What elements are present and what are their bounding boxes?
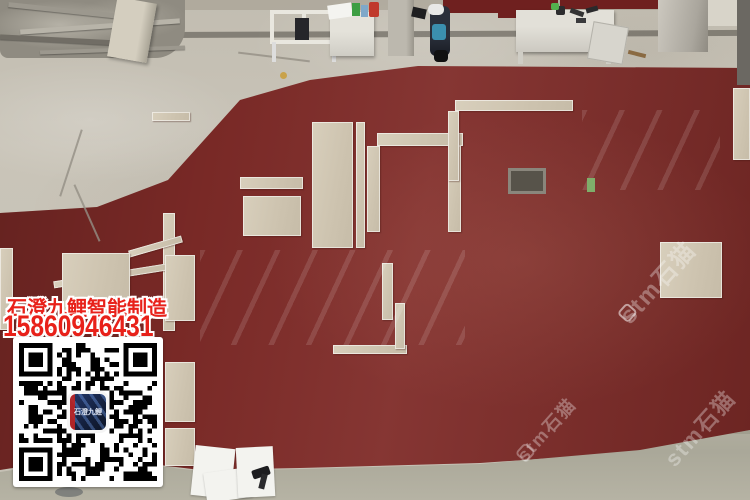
marble-strip [152,112,190,121]
factory-floor-photo: stm石猫 stm石猫 stm石猫 石澄九鲤智能制造 15860946431 石… [0,0,750,500]
tile-grid-center-left [190,248,350,466]
marble-strip [448,111,459,181]
tile-grid-column [405,240,469,423]
scooter-helmet [428,4,444,15]
marble-strip [367,146,380,232]
marble-strip [382,263,393,320]
green-bottle [352,3,360,16]
tool [576,18,586,23]
green-spacer-chip [587,178,595,192]
marble-tile-tall [312,122,353,248]
tile-grid-right-glossy [580,108,722,259]
tile-grid-bottom-center [482,243,600,426]
qr-logo-text: 石澄九鲤 [74,407,102,417]
light-wall-patch [708,0,738,26]
debris-speck [280,72,287,79]
marble-strip [395,303,405,349]
scooter-wheel [434,50,448,62]
bench-leg [272,42,276,62]
scaffold-pile [0,0,190,64]
work-bench [270,8,374,64]
bench-vise-tool [295,18,309,40]
marble-strip [240,177,303,189]
bench-cabinet [330,12,374,56]
floor-stain [55,487,83,497]
dark-pillar-edge [737,0,750,85]
hammer [250,466,276,490]
cart-leg [518,52,523,64]
marble-tile [243,196,301,236]
cart-open-door [587,21,629,65]
clear-bottle [361,5,368,17]
floor-drain [508,168,546,194]
red-canister [369,2,379,17]
qr-code: 石澄九鲤 [13,337,163,487]
scooter-panel [432,24,446,40]
green-cap [551,3,559,10]
marble-strip [733,88,750,160]
marble-strip [455,100,573,111]
marble-strip [356,122,365,248]
concrete-pillar [658,0,708,52]
concrete-pillar [388,0,414,56]
tool-cart [516,8,622,64]
qr-center-logo: 石澄九鲤 [67,391,109,433]
scooter [424,2,458,62]
